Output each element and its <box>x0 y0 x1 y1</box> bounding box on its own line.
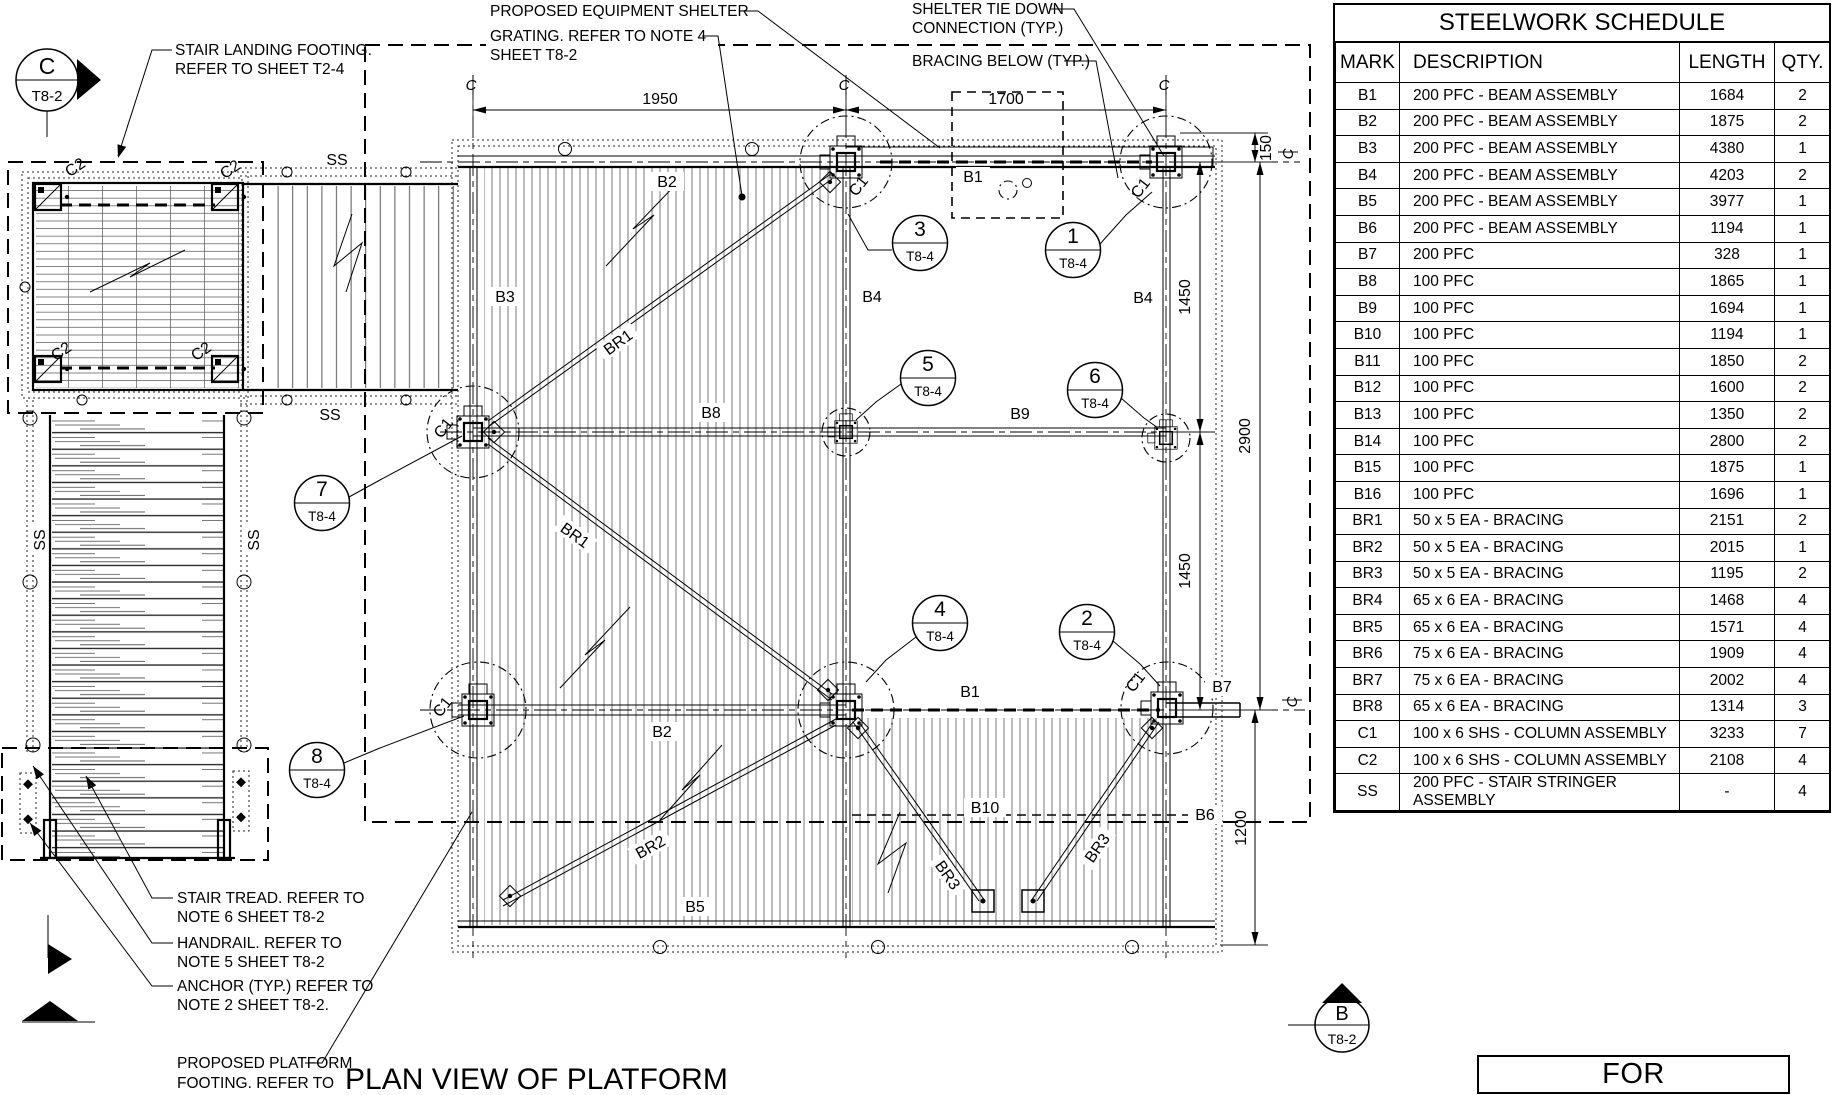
schedule-cell: 200 PFC - BEAM ASSEMBLY <box>1400 109 1680 136</box>
note-handrail-line1: HANDRAIL. REFER TO <box>177 935 342 952</box>
schedule-cell: 2 <box>1775 348 1831 375</box>
schedule-cell: B12 <box>1336 375 1400 402</box>
schedule-cell: 1 <box>1775 455 1831 482</box>
stringer-label-ss: SS <box>326 152 347 169</box>
schedule-cell: 100 PFC <box>1400 455 1680 482</box>
callout-number: 5 <box>922 353 934 376</box>
schedule-cell: 1696 <box>1680 481 1775 508</box>
schedule-cell: 2151 <box>1680 508 1775 535</box>
schedule-cell: 75 x 6 EA - BRACING <box>1400 668 1680 695</box>
schedule-cell: B9 <box>1336 295 1400 322</box>
callout-number: 4 <box>934 598 946 621</box>
schedule-cell: 7 <box>1775 721 1831 748</box>
note-anchor-line1: ANCHOR (TYP.) REFER TO <box>177 978 373 995</box>
schedule-cell: 1 <box>1775 535 1831 562</box>
schedule-row: B13100 PFC13502 <box>1336 402 1831 429</box>
upper-stair-flight-treads <box>266 186 456 388</box>
lower-stair-flight-treads <box>52 418 224 858</box>
grating-left <box>484 168 840 925</box>
schedule-row: B15100 PFC18751 <box>1336 455 1831 482</box>
schedule-col-mark: MARK <box>1336 43 1400 83</box>
callout-number: 1 <box>1067 225 1079 248</box>
centerline-glyph: C <box>1159 77 1170 94</box>
callout-number: 8 <box>311 745 323 768</box>
callout-number: 7 <box>316 478 328 501</box>
partial-section-arrows <box>22 915 95 1022</box>
schedule-row: B14100 PFC28002 <box>1336 428 1831 455</box>
schedule-cell: 1194 <box>1680 215 1775 242</box>
schedule-row: B8100 PFC18651 <box>1336 269 1831 296</box>
beam-label-b9: B9 <box>1010 406 1030 423</box>
schedule-cell: 2 <box>1775 561 1831 588</box>
schedule-row: B6200 PFC - BEAM ASSEMBLY11941 <box>1336 215 1831 242</box>
note-stair-tread-line1: STAIR TREAD. REFER TO <box>177 890 364 907</box>
schedule-cell: 65 x 6 EA - BRACING <box>1400 588 1680 615</box>
schedule-cell: 100 x 6 SHS - COLUMN ASSEMBLY <box>1400 721 1680 748</box>
beam-label-b7: B7 <box>1212 679 1232 696</box>
beam-label-b2: B2 <box>657 174 677 191</box>
callout-number: 3 <box>914 218 926 241</box>
dim-1700: 1700 <box>988 91 1024 108</box>
dim-150: 150 <box>1258 135 1275 161</box>
note-bracing-below: BRACING BELOW (TYP.) <box>912 53 1090 70</box>
callout-sheet: T8-4 <box>308 509 336 524</box>
schedule-cell: 1 <box>1775 295 1831 322</box>
schedule-cell: 1 <box>1775 269 1831 296</box>
schedule-cell: B3 <box>1336 136 1400 163</box>
schedule-cell: 2800 <box>1680 428 1775 455</box>
schedule-cell: BR2 <box>1336 535 1400 562</box>
schedule-cell: B15 <box>1336 455 1400 482</box>
schedule-cell: 2 <box>1775 508 1831 535</box>
schedule-cell: 200 PFC - BEAM ASSEMBLY <box>1400 215 1680 242</box>
schedule-col-length: LENGTH <box>1680 43 1775 83</box>
schedule-cell: 1314 <box>1680 694 1775 721</box>
note-tie-down-line2: CONNECTION (TYP.) <box>912 20 1063 37</box>
schedule-cell: 4 <box>1775 747 1831 774</box>
schedule-cell: 1694 <box>1680 295 1775 322</box>
schedule-row: B5200 PFC - BEAM ASSEMBLY39771 <box>1336 189 1831 216</box>
schedule-cell: BR5 <box>1336 614 1400 641</box>
schedule-cell: 4 <box>1775 774 1831 811</box>
schedule-cell: 2 <box>1775 428 1831 455</box>
schedule-cell: 4380 <box>1680 136 1775 163</box>
schedule-row: BR250 x 5 EA - BRACING20151 <box>1336 535 1831 562</box>
schedule-cell: B14 <box>1336 428 1400 455</box>
schedule-cell: 1850 <box>1680 348 1775 375</box>
schedule-cell: BR7 <box>1336 668 1400 695</box>
schedule-cell: 50 x 5 EA - BRACING <box>1400 561 1680 588</box>
schedule-cell: BR8 <box>1336 694 1400 721</box>
schedule-row: BR865 x 6 EA - BRACING13143 <box>1336 694 1831 721</box>
note-stair-landing-line2: REFER TO SHEET T2-4 <box>175 61 345 78</box>
schedule-cell: 4 <box>1775 641 1831 668</box>
schedule-cell: 2 <box>1775 109 1831 136</box>
callout-number: 6 <box>1089 365 1101 388</box>
schedule-row: B11100 PFC18502 <box>1336 348 1831 375</box>
callout-sheet: T8-4 <box>914 384 942 399</box>
schedule-cell: B8 <box>1336 269 1400 296</box>
drawing-sheet: 1950 1700 150 1450 1450 2900 1200 C C C … <box>0 0 1833 1095</box>
schedule-cell: 4 <box>1775 588 1831 615</box>
column-label-c1: C1 <box>431 415 457 442</box>
schedule-row: BR565 x 6 EA - BRACING15714 <box>1336 614 1831 641</box>
schedule-cell: 328 <box>1680 242 1775 269</box>
schedule-cell: 4 <box>1775 614 1831 641</box>
detail-callout-3: 3 T8-4 <box>893 216 948 271</box>
beam-label-b8: B8 <box>701 405 721 422</box>
schedule-cell: 50 x 5 EA - BRACING <box>1400 535 1680 562</box>
note-platform-footing-line1: PROPOSED PLATFORM <box>177 1055 352 1072</box>
detail-callout-5: 5 T8-4 <box>901 351 956 406</box>
schedule-cell: 1195 <box>1680 561 1775 588</box>
schedule-cell: 4 <box>1775 668 1831 695</box>
section-marker-c: C T8-2 <box>16 49 101 137</box>
callout-sheet: T8-4 <box>1073 638 1101 653</box>
section-marker-sheet: T8-2 <box>32 88 63 105</box>
schedule-body: B1200 PFC - BEAM ASSEMBLY16842B2200 PFC … <box>1336 83 1831 811</box>
schedule-cell: B1 <box>1336 83 1400 110</box>
schedule-row: B10100 PFC11941 <box>1336 322 1831 349</box>
schedule-cell: 200 PFC - BEAM ASSEMBLY <box>1400 162 1680 189</box>
schedule-row: C2100 x 6 SHS - COLUMN ASSEMBLY21084 <box>1336 747 1831 774</box>
detail-callout-6: 6 T8-4 <box>1068 363 1123 418</box>
schedule-row: SS200 PFC - STAIR STRINGER ASSEMBLY-4 <box>1336 774 1831 811</box>
section-marker-b: B T8-2 <box>1288 983 1369 1052</box>
schedule-row: B7200 PFC3281 <box>1336 242 1831 269</box>
dim-1200: 1200 <box>1233 810 1250 846</box>
schedule-cell: 3 <box>1775 694 1831 721</box>
schedule-cell: 1 <box>1775 322 1831 349</box>
centerline-glyph: C <box>466 77 477 94</box>
beam-label-b4: B4 <box>1133 290 1153 307</box>
schedule-cell: 1600 <box>1680 375 1775 402</box>
schedule-cell: 4203 <box>1680 162 1775 189</box>
note-handrail-line2: NOTE 5 SHEET T8-2 <box>177 954 325 971</box>
callout-sheet: T8-4 <box>906 249 934 264</box>
note-grating-line2: SHEET T8-2 <box>490 47 577 64</box>
schedule-row: B9100 PFC16941 <box>1336 295 1831 322</box>
schedule-cell: 3233 <box>1680 721 1775 748</box>
schedule-cell: 1 <box>1775 189 1831 216</box>
schedule-row: B3200 PFC - BEAM ASSEMBLY43801 <box>1336 136 1831 163</box>
schedule-cell: BR3 <box>1336 561 1400 588</box>
beam-label-b1: B1 <box>960 684 980 701</box>
schedule-cell: 2 <box>1775 375 1831 402</box>
schedule-cell: 75 x 6 EA - BRACING <box>1400 641 1680 668</box>
schedule-cell: B13 <box>1336 402 1400 429</box>
beam-label-b6: B6 <box>1195 807 1215 824</box>
schedule-row: B16100 PFC16961 <box>1336 481 1831 508</box>
schedule-cell: BR1 <box>1336 508 1400 535</box>
schedule-cell: SS <box>1336 774 1400 811</box>
note-stair-landing-line1: STAIR LANDING FOOTING. <box>175 42 372 59</box>
schedule-row: BR775 x 6 EA - BRACING20024 <box>1336 668 1831 695</box>
section-marker-sheet: T8-2 <box>1328 1031 1357 1047</box>
note-grating-line1: GRATING. REFER TO NOTE 4 <box>490 28 707 45</box>
schedule-cell: 1571 <box>1680 614 1775 641</box>
stringer-label-ss: SS <box>32 529 49 550</box>
callout-number: 2 <box>1081 607 1093 630</box>
stringer-label-ss: SS <box>246 529 263 550</box>
schedule-table: MARK DESCRIPTION LENGTH QTY. B1200 PFC -… <box>1335 43 1831 811</box>
view-title: PLAN VIEW OF PLATFORM <box>345 1063 728 1095</box>
beam-label-b5: B5 <box>685 899 705 916</box>
dim-1450-lower: 1450 <box>1177 553 1194 589</box>
schedule-row: B4200 PFC - BEAM ASSEMBLY42032 <box>1336 162 1831 189</box>
schedule-cell: 1875 <box>1680 109 1775 136</box>
schedule-cell: 1684 <box>1680 83 1775 110</box>
schedule-cell: 200 PFC <box>1400 242 1680 269</box>
schedule-cell: 1875 <box>1680 455 1775 482</box>
schedule-cell: 1865 <box>1680 269 1775 296</box>
schedule-cell: B10 <box>1336 322 1400 349</box>
beam-label-b10: B10 <box>971 800 1000 817</box>
note-stair-tread-line2: NOTE 6 SHEET T8-2 <box>177 909 325 926</box>
callout-sheet: T8-4 <box>926 629 954 644</box>
schedule-cell: BR6 <box>1336 641 1400 668</box>
centerline-glyph: C <box>1280 148 1297 159</box>
detail-callout-7: 7 T8-4 <box>295 476 350 531</box>
dim-1450-upper: 1450 <box>1177 279 1194 315</box>
schedule-row: BR350 x 5 EA - BRACING11952 <box>1336 561 1831 588</box>
schedule-cell: 1194 <box>1680 322 1775 349</box>
detail-callout-4: 4 T8-4 <box>913 596 968 651</box>
schedule-cell: 1468 <box>1680 588 1775 615</box>
schedule-cell: 100 PFC <box>1400 375 1680 402</box>
schedule-cell: 200 PFC - BEAM ASSEMBLY <box>1400 189 1680 216</box>
schedule-cell: 100 PFC <box>1400 269 1680 296</box>
beam-label-b2: B2 <box>652 724 672 741</box>
detail-callout-8: 8 T8-4 <box>290 743 345 798</box>
schedule-cell: B11 <box>1336 348 1400 375</box>
detail-callout-1: 1 T8-4 <box>1046 223 1101 278</box>
schedule-cell: 2015 <box>1680 535 1775 562</box>
section-marker-letter: C <box>39 53 56 79</box>
schedule-col-description: DESCRIPTION <box>1400 43 1680 83</box>
column-label-c2: C2 <box>217 157 244 183</box>
schedule-cell: 100 PFC <box>1400 295 1680 322</box>
detail-callout-2: 2 T8-4 <box>1060 605 1115 660</box>
stringer-label-ss: SS <box>319 407 340 424</box>
beam-label-b1: B1 <box>963 169 983 186</box>
schedule-row: B1200 PFC - BEAM ASSEMBLY16842 <box>1336 83 1831 110</box>
column-label-c2: C2 <box>62 155 89 181</box>
for-construction-stamp: FOR CONSTRUCTION <box>1477 1055 1790 1094</box>
dim-1950: 1950 <box>642 91 678 108</box>
schedule-cell: 200 PFC - STAIR STRINGER ASSEMBLY <box>1400 774 1680 811</box>
note-equipment-shelter: PROPOSED EQUIPMENT SHELTER <box>490 3 749 20</box>
schedule-cell: 200 PFC - BEAM ASSEMBLY <box>1400 83 1680 110</box>
schedule-cell: 50 x 5 EA - BRACING <box>1400 508 1680 535</box>
schedule-row: B2200 PFC - BEAM ASSEMBLY18752 <box>1336 109 1831 136</box>
schedule-cell: BR4 <box>1336 588 1400 615</box>
schedule-cell: 1 <box>1775 481 1831 508</box>
beam-label-b3: B3 <box>495 289 515 306</box>
schedule-header-row: MARK DESCRIPTION LENGTH QTY. <box>1336 43 1831 83</box>
schedule-cell: B6 <box>1336 215 1400 242</box>
schedule-cell: 100 PFC <box>1400 481 1680 508</box>
schedule-row: BR150 x 5 EA - BRACING21512 <box>1336 508 1831 535</box>
schedule-cell: B5 <box>1336 189 1400 216</box>
schedule-cell: 100 PFC <box>1400 428 1680 455</box>
schedule-row: BR675 x 6 EA - BRACING19094 <box>1336 641 1831 668</box>
centerline-glyph: C <box>839 77 850 94</box>
schedule-cell: 65 x 6 EA - BRACING <box>1400 614 1680 641</box>
schedule-cell: 2108 <box>1680 747 1775 774</box>
schedule-row: C1100 x 6 SHS - COLUMN ASSEMBLY32337 <box>1336 721 1831 748</box>
schedule-cell: 2002 <box>1680 668 1775 695</box>
tie-down-holes <box>999 179 1032 200</box>
schedule-cell: 2 <box>1775 162 1831 189</box>
schedule-cell: 1909 <box>1680 641 1775 668</box>
schedule-cell: 100 x 6 SHS - COLUMN ASSEMBLY <box>1400 747 1680 774</box>
schedule-cell: 100 PFC <box>1400 402 1680 429</box>
schedule-row: BR465 x 6 EA - BRACING14684 <box>1336 588 1831 615</box>
schedule-cell: B4 <box>1336 162 1400 189</box>
note-platform-footing-line2: FOOTING. REFER TO <box>177 1075 334 1092</box>
schedule-cell: 1 <box>1775 242 1831 269</box>
dim-2900: 2900 <box>1237 418 1254 454</box>
schedule-cell: 2 <box>1775 83 1831 110</box>
schedule-cell: C1 <box>1336 721 1400 748</box>
schedule-cell: B2 <box>1336 109 1400 136</box>
note-anchor-line2: NOTE 2 SHEET T8-2. <box>177 997 329 1014</box>
note-tie-down-line1: SHELTER TIE DOWN <box>912 1 1064 18</box>
steelwork-schedule: STEELWORK SCHEDULE MARK DESCRIPTION LENG… <box>1333 3 1831 813</box>
schedule-cell: 2 <box>1775 402 1831 429</box>
schedule-cell: 200 PFC - BEAM ASSEMBLY <box>1400 136 1680 163</box>
column-label-c1: C1 <box>1128 175 1154 202</box>
schedule-col-qty: QTY. <box>1775 43 1831 83</box>
schedule-title: STEELWORK SCHEDULE <box>1335 5 1829 43</box>
schedule-row: B12100 PFC16002 <box>1336 375 1831 402</box>
section-marker-letter: B <box>1335 1003 1348 1025</box>
schedule-cell: 1350 <box>1680 402 1775 429</box>
schedule-cell: B7 <box>1336 242 1400 269</box>
beam-label-b4: B4 <box>862 289 882 306</box>
schedule-cell: 1 <box>1775 215 1831 242</box>
schedule-cell: C2 <box>1336 747 1400 774</box>
schedule-cell: 3977 <box>1680 189 1775 216</box>
column-label-c1: C1 <box>1123 669 1149 696</box>
schedule-cell: 65 x 6 EA - BRACING <box>1400 694 1680 721</box>
schedule-cell: 1 <box>1775 136 1831 163</box>
callout-sheet: T8-4 <box>303 776 331 791</box>
centerline-glyph: C <box>1284 696 1301 707</box>
schedule-cell: - <box>1680 774 1775 811</box>
schedule-cell: B16 <box>1336 481 1400 508</box>
callout-sheet: T8-4 <box>1059 256 1087 271</box>
schedule-cell: 100 PFC <box>1400 348 1680 375</box>
schedule-cell: 100 PFC <box>1400 322 1680 349</box>
callout-sheet: T8-4 <box>1081 396 1109 411</box>
